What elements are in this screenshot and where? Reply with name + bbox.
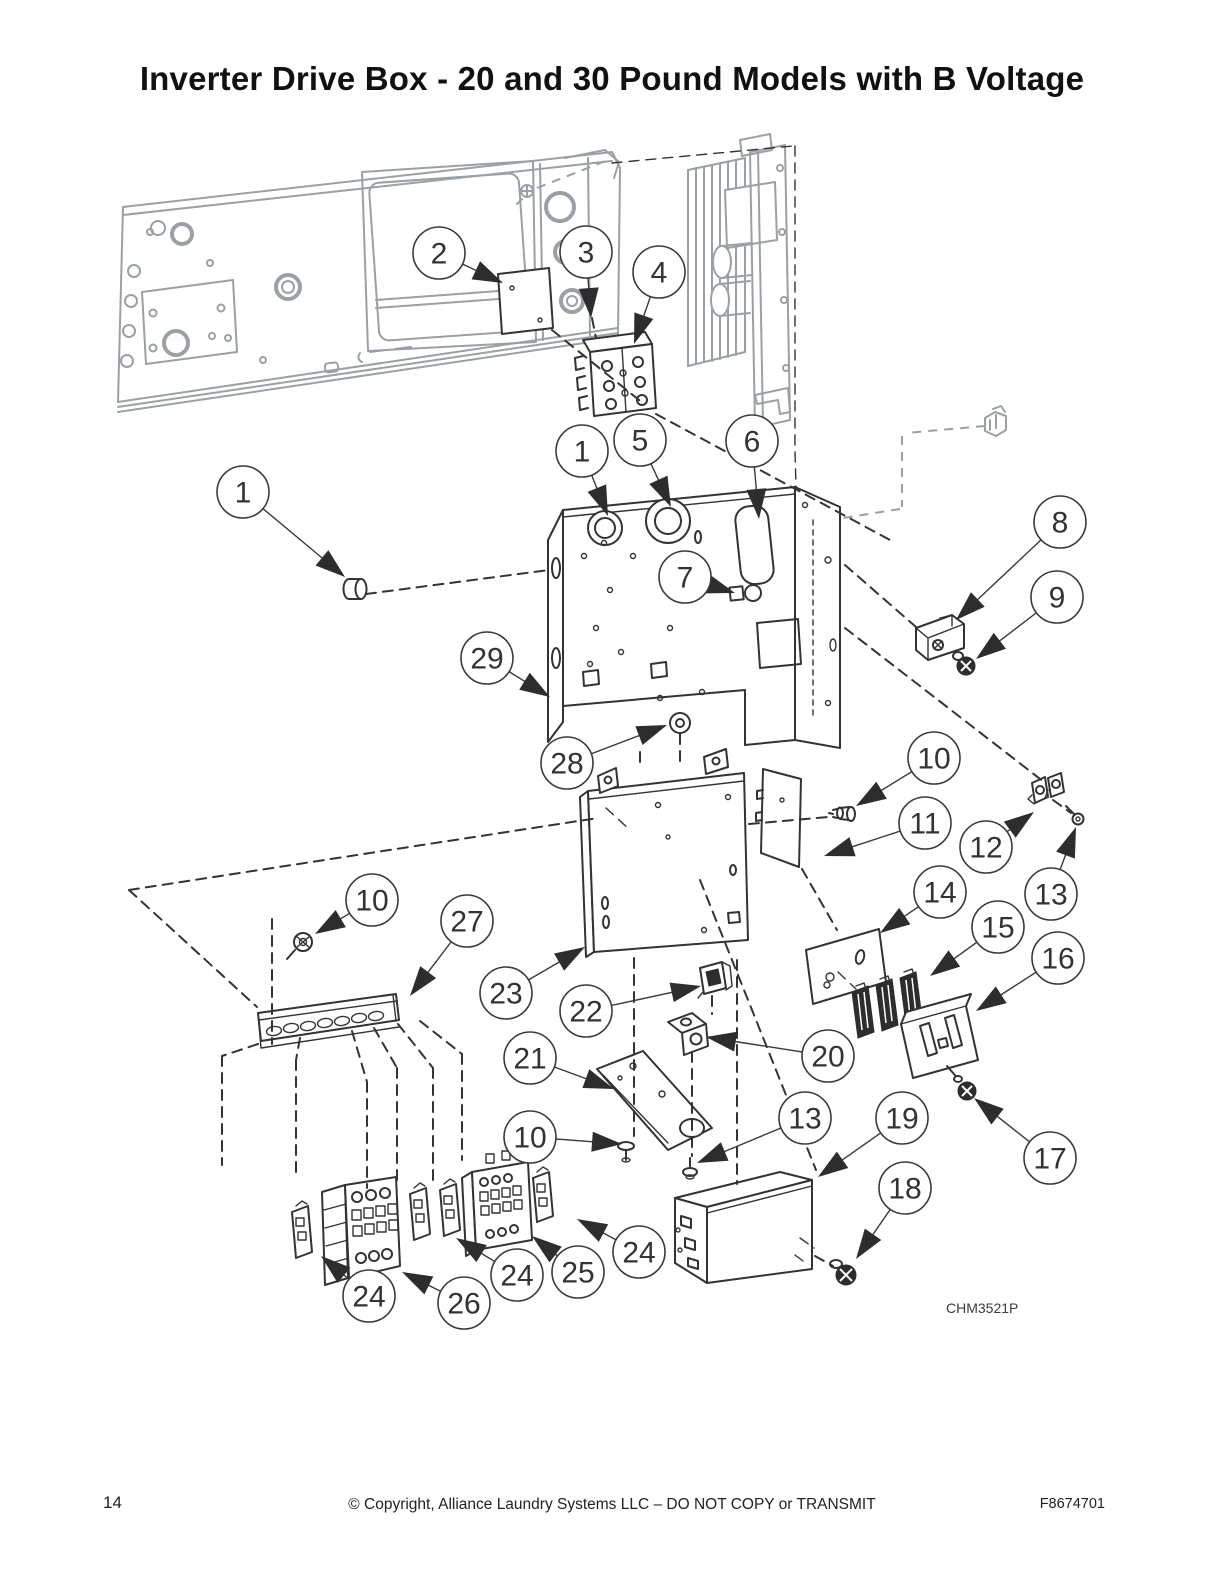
terminal-block-drawing bbox=[575, 332, 656, 416]
svg-text:1: 1 bbox=[574, 436, 591, 469]
svg-text:17: 17 bbox=[1033, 1143, 1066, 1176]
callout-5: 5 bbox=[614, 414, 671, 507]
manual-page: { "page": { "title": "Inverter Drive Box… bbox=[0, 0, 1224, 1584]
screw-9-drawing bbox=[953, 652, 975, 675]
callout-1: 1 bbox=[217, 466, 345, 577]
svg-text:29: 29 bbox=[470, 643, 503, 676]
callout-18: 18 bbox=[856, 1162, 931, 1259]
svg-text:9: 9 bbox=[1049, 582, 1066, 615]
grommet-drawing bbox=[344, 579, 367, 599]
din-rail-drawing bbox=[258, 994, 399, 1048]
inner-plate-drawing bbox=[580, 749, 748, 957]
svg-text:14: 14 bbox=[923, 877, 956, 910]
callout-26: 26 bbox=[402, 1272, 490, 1329]
callout-2: 2 bbox=[413, 227, 503, 283]
callout-20: 20 bbox=[706, 1030, 854, 1082]
svg-text:16: 16 bbox=[1041, 943, 1074, 976]
svg-text:10: 10 bbox=[355, 885, 388, 918]
callout-11: 11 bbox=[824, 797, 951, 856]
callout-10: 10 bbox=[504, 1111, 622, 1163]
svg-text:13: 13 bbox=[1034, 879, 1067, 912]
svg-text:10: 10 bbox=[917, 743, 950, 776]
aux-contact-3-drawing bbox=[440, 1179, 460, 1236]
svg-text:24: 24 bbox=[622, 1237, 655, 1270]
svg-text:5: 5 bbox=[632, 425, 649, 458]
aux-contact-2-drawing bbox=[410, 1183, 430, 1240]
callout-10: 10 bbox=[315, 874, 398, 934]
screw-10-left-drawing bbox=[287, 933, 312, 959]
svg-text:26: 26 bbox=[447, 1288, 480, 1321]
callout-25: 25 bbox=[532, 1236, 604, 1298]
svg-text:10: 10 bbox=[513, 1122, 546, 1155]
svg-text:24: 24 bbox=[352, 1281, 385, 1314]
figure-label: CHM3521P bbox=[946, 1300, 1018, 1316]
side-plate-drawing bbox=[756, 769, 801, 867]
callout-10: 10 bbox=[856, 732, 960, 806]
mounting-bracket-drawing bbox=[548, 487, 840, 748]
aux-contact-4-drawing bbox=[533, 1167, 553, 1222]
contactor-25-drawing bbox=[462, 1151, 532, 1256]
svg-text:23: 23 bbox=[489, 978, 522, 1011]
svg-text:22: 22 bbox=[569, 996, 602, 1029]
svg-text:12: 12 bbox=[969, 832, 1002, 865]
svg-text:6: 6 bbox=[744, 426, 761, 459]
callout-29: 29 bbox=[461, 632, 550, 697]
callout-13: 13 bbox=[697, 1092, 831, 1163]
callout-12: 12 bbox=[960, 812, 1034, 873]
svg-text:28: 28 bbox=[550, 748, 583, 781]
svg-text:21: 21 bbox=[513, 1043, 546, 1076]
screw-17-drawing bbox=[947, 1066, 976, 1100]
aux-contact-1-drawing bbox=[292, 1201, 312, 1258]
filter-box-drawing bbox=[675, 1172, 814, 1283]
svg-text:27: 27 bbox=[450, 906, 483, 939]
svg-text:8: 8 bbox=[1052, 507, 1069, 540]
callout-4: 4 bbox=[633, 246, 685, 344]
callout-27: 27 bbox=[410, 895, 493, 996]
angled-bracket-drawing bbox=[597, 1051, 712, 1150]
retainer-clip-drawing bbox=[843, 406, 1006, 518]
svg-text:25: 25 bbox=[561, 1257, 594, 1290]
clamp-bracket-drawing bbox=[668, 1013, 708, 1055]
svg-text:4: 4 bbox=[651, 257, 668, 290]
callout-21: 21 bbox=[504, 1032, 614, 1089]
svg-text:2: 2 bbox=[431, 238, 448, 271]
callout-13: 13 bbox=[1025, 827, 1077, 920]
callout-9: 9 bbox=[976, 571, 1083, 659]
screw-18-drawing bbox=[830, 1260, 856, 1285]
label-plate-drawing bbox=[806, 929, 886, 1004]
screw-10-right-drawing bbox=[829, 807, 855, 821]
callout-1: 1 bbox=[556, 425, 608, 516]
svg-text:1: 1 bbox=[235, 477, 252, 510]
callout-17: 17 bbox=[974, 1098, 1076, 1184]
cover-plate-drawing bbox=[498, 268, 553, 334]
screw-10-bottom-drawing bbox=[618, 1142, 634, 1162]
exploded-parts-diagram: 2341156789292810111213141516171027232221… bbox=[0, 0, 1224, 1584]
svg-text:3: 3 bbox=[578, 237, 595, 270]
svg-text:7: 7 bbox=[677, 562, 694, 595]
svg-text:24: 24 bbox=[500, 1260, 533, 1293]
svg-text:19: 19 bbox=[885, 1103, 918, 1136]
svg-text:20: 20 bbox=[811, 1041, 844, 1074]
svg-text:15: 15 bbox=[981, 912, 1014, 945]
svg-text:18: 18 bbox=[888, 1173, 921, 1206]
callout-14: 14 bbox=[880, 866, 966, 933]
svg-text:13: 13 bbox=[788, 1103, 821, 1136]
screw-13-right-drawing bbox=[1066, 806, 1084, 825]
svg-text:11: 11 bbox=[909, 808, 940, 841]
connector-block-drawing bbox=[698, 962, 732, 998]
hinge-block-drawing bbox=[1028, 773, 1064, 804]
screw-13-bottom-drawing bbox=[683, 1158, 697, 1179]
footer-doc-number: F8674701 bbox=[1040, 1496, 1105, 1512]
